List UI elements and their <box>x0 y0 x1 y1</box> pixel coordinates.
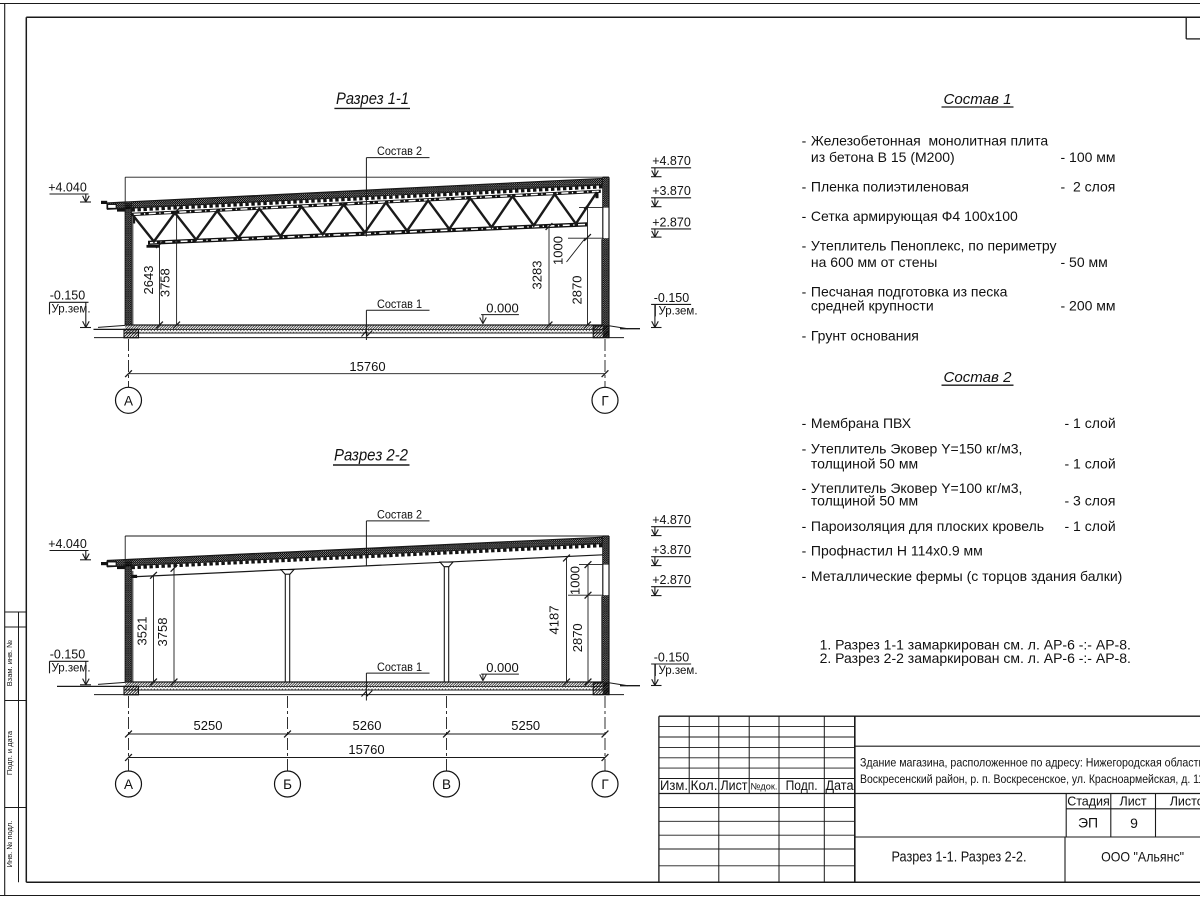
svg-text:5250: 5250 <box>511 718 540 733</box>
svg-text:3758: 3758 <box>158 268 173 297</box>
svg-text:Металлические фермы (с торцов: Металлические фермы (с торцов здания бал… <box>811 568 1122 584</box>
svg-text:на 600 мм от стены: на 600 мм от стены <box>811 254 937 270</box>
svg-text:Инв. № подл.: Инв. № подл. <box>5 821 14 868</box>
svg-text:Мембрана ПВХ: Мембрана ПВХ <box>811 415 912 431</box>
svg-text:-: - <box>802 568 807 584</box>
svg-text:Утеплитель Эковер Y=150 кг/м3,: Утеплитель Эковер Y=150 кг/м3, <box>811 441 1023 457</box>
svg-text:3521: 3521 <box>135 617 150 646</box>
svg-text:2870: 2870 <box>570 623 585 652</box>
svg-text:- 3 слоя: - 3 слоя <box>1065 493 1116 509</box>
svg-text:толщиной 50 мм: толщиной 50 мм <box>811 455 918 471</box>
svg-text:средней крупности: средней крупности <box>811 297 934 313</box>
svg-text:Состав 1: Состав 1 <box>377 660 422 674</box>
svg-text:Сетка армирующая Ф4 100х100: Сетка армирующая Ф4 100х100 <box>811 208 1018 224</box>
svg-text:0.000: 0.000 <box>486 660 519 675</box>
svg-text:-: - <box>802 480 807 496</box>
svg-text:Профнастил Н 114х0.9 мм: Профнастил Н 114х0.9 мм <box>811 543 983 559</box>
svg-text:-: - <box>802 283 807 299</box>
svg-text:5260: 5260 <box>353 718 382 733</box>
svg-text:Ур.зем.: Ур.зем. <box>659 665 698 677</box>
svg-text:№док.: №док. <box>751 782 778 793</box>
svg-text:- 200 мм: - 200 мм <box>1061 297 1116 313</box>
svg-text:- 1 слой: - 1 слой <box>1065 518 1116 534</box>
svg-text:Ур.зем.: Ур.зем. <box>659 306 698 318</box>
svg-text:- 100 мм: - 100 мм <box>1061 149 1116 165</box>
svg-text:2643: 2643 <box>141 266 156 295</box>
svg-text:из бетона В 15 (М200): из бетона В 15 (М200) <box>811 149 955 165</box>
svg-text:Листов: Листов <box>1170 795 1200 809</box>
svg-text:А: А <box>124 393 133 408</box>
svg-text:Состав 2: Состав 2 <box>944 370 1012 386</box>
svg-text:3283: 3283 <box>530 261 545 290</box>
svg-text:Здание магазина, расположенное: Здание магазина, расположенное по адресу… <box>860 756 1200 770</box>
svg-text:Ур.зем.: Ур.зем. <box>52 663 91 675</box>
svg-text:1000: 1000 <box>568 566 583 595</box>
svg-text:Состав 2: Состав 2 <box>377 507 422 521</box>
svg-text:Состав 1: Состав 1 <box>944 92 1012 108</box>
svg-text:3758: 3758 <box>155 618 170 647</box>
svg-text:15760: 15760 <box>348 742 384 757</box>
svg-text:-: - <box>802 518 807 534</box>
svg-text:Железобетонная монолитная пли: Железобетонная монолитная плита <box>811 133 1048 149</box>
svg-text:+2.870: +2.870 <box>652 573 691 587</box>
svg-text:2870: 2870 <box>570 276 585 305</box>
svg-text:-: - <box>802 441 807 457</box>
svg-text:-: - <box>802 543 807 559</box>
svg-text:Состав 2: Состав 2 <box>377 144 422 158</box>
svg-text:Стадия: Стадия <box>1067 795 1110 809</box>
svg-text:Утеплитель Пеноплекс, по перим: Утеплитель Пеноплекс, по периметру <box>811 238 1057 254</box>
svg-text:Разрез 2-2: Разрез 2-2 <box>334 446 408 465</box>
svg-text:-0.150: -0.150 <box>50 289 85 303</box>
svg-text:- 50 мм: - 50 мм <box>1061 254 1108 270</box>
svg-text:Разрез 1-1. Разрез 2-2.: Разрез 1-1. Разрез 2-2. <box>892 850 1027 866</box>
svg-text:+4.870: +4.870 <box>652 154 691 168</box>
svg-text:-: - <box>802 208 807 224</box>
svg-text:-: - <box>802 178 807 194</box>
svg-text:-: - <box>802 133 807 149</box>
svg-text:+4.040: +4.040 <box>48 180 87 194</box>
svg-text:-0.150: -0.150 <box>50 648 85 662</box>
svg-text:Лист: Лист <box>721 778 748 793</box>
svg-text:4187: 4187 <box>547 606 562 635</box>
svg-text:+4.870: +4.870 <box>652 513 691 527</box>
svg-text:Лист: Лист <box>1120 795 1147 809</box>
svg-text:толщиной 50 мм: толщиной 50 мм <box>811 493 918 509</box>
svg-text:- 2 слоя: - 2 слоя <box>1061 178 1116 194</box>
svg-text:Разрез 1-1: Разрез 1-1 <box>336 89 409 108</box>
svg-text:+3.870: +3.870 <box>652 184 691 198</box>
svg-text:А: А <box>124 777 133 792</box>
svg-text:Подп.: Подп. <box>786 778 818 793</box>
svg-text:9: 9 <box>1130 815 1138 831</box>
svg-text:2. Разрез 2-2 замаркирован см.: 2. Разрез 2-2 замаркирован см. л. АР-6 -… <box>820 650 1131 666</box>
svg-text:Б: Б <box>283 777 292 792</box>
svg-text:0.000: 0.000 <box>486 300 519 315</box>
svg-text:ООО "Альянс": ООО "Альянс" <box>1101 849 1184 865</box>
svg-text:Грунт основания: Грунт основания <box>811 328 919 344</box>
svg-text:Г: Г <box>601 393 609 408</box>
svg-text:Кол.: Кол. <box>691 778 718 793</box>
svg-text:15760: 15760 <box>349 359 385 374</box>
svg-text:Г: Г <box>601 777 609 792</box>
svg-text:Изм.: Изм. <box>660 778 688 793</box>
svg-text:1000: 1000 <box>551 236 566 265</box>
svg-text:+3.870: +3.870 <box>652 543 691 557</box>
svg-text:- 1 слой: - 1 слой <box>1065 415 1116 431</box>
svg-text:Состав 1: Состав 1 <box>377 297 422 311</box>
svg-text:+2.870: +2.870 <box>652 215 691 229</box>
svg-text:-: - <box>802 238 807 254</box>
svg-text:Подп. и дата: Подп. и дата <box>5 730 14 775</box>
svg-text:-: - <box>802 328 807 344</box>
svg-text:-0.150: -0.150 <box>654 650 689 664</box>
svg-text:5250: 5250 <box>194 718 223 733</box>
svg-text:ЭП: ЭП <box>1078 815 1098 831</box>
svg-text:- 1 слой: - 1 слой <box>1065 455 1116 471</box>
svg-text:Пароизоляция для плоских крове: Пароизоляция для плоских кровель <box>811 518 1044 534</box>
svg-text:Пленка полиэтиленовая: Пленка полиэтиленовая <box>811 178 969 194</box>
svg-text:Дата: Дата <box>826 778 854 793</box>
svg-text:-0.150: -0.150 <box>654 291 689 305</box>
svg-text:Взам. инв. №: Взам. инв. № <box>5 640 14 686</box>
svg-text:+4.040: +4.040 <box>48 537 87 551</box>
svg-text:В: В <box>442 777 451 792</box>
svg-text:Воскресенский район, р. п. Вос: Воскресенский район, р. п. Воскресенское… <box>860 772 1200 786</box>
svg-text:Ур.зем.: Ур.зем. <box>52 304 91 316</box>
svg-text:-: - <box>802 415 807 431</box>
